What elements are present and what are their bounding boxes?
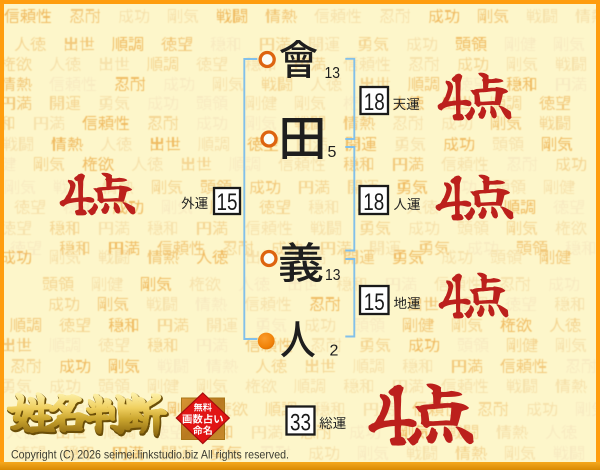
svg-text:5: 5 [328,144,337,161]
svg-text:33: 33 [290,410,311,437]
svg-text:Copyright (C) 2026 seimei.link: Copyright (C) 2026 seimei.linkstudio.biz… [11,448,289,462]
svg-text:13: 13 [325,267,341,284]
svg-text:2: 2 [330,342,339,359]
svg-text:15: 15 [217,189,238,216]
svg-text:13: 13 [325,65,341,82]
svg-text:18: 18 [364,89,385,116]
svg-text:15: 15 [364,289,385,316]
svg-text:18: 18 [363,189,384,216]
